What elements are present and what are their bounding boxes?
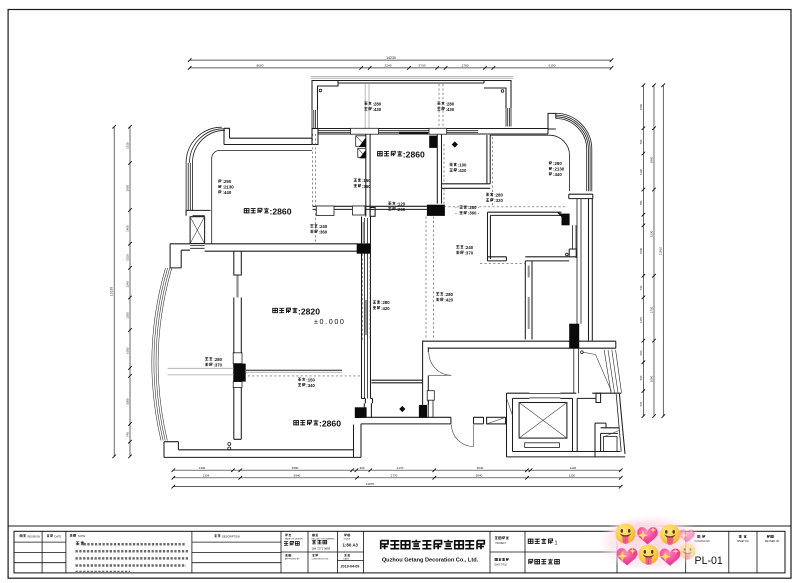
svg-text::280: :280 <box>446 101 455 106</box>
svg-text:740: 740 <box>125 432 129 437</box>
svg-text:APPROVED BY: APPROVED BY <box>285 558 301 561</box>
svg-text::360: :360 <box>319 230 328 235</box>
svg-text:3040: 3040 <box>477 466 484 470</box>
svg-text:3230: 3230 <box>649 230 653 237</box>
svg-text:±0.000: ±0.000 <box>314 317 346 326</box>
svg-text:CONSTRUCTION: CONSTRUCTION <box>312 559 329 561</box>
svg-text::280: :280 <box>373 101 382 106</box>
svg-text:PL-01: PL-01 <box>695 555 723 567</box>
svg-text:600: 600 <box>639 350 643 355</box>
svg-text:DESCRIPTION: DESCRIPTION <box>222 534 240 538</box>
svg-text:5940: 5940 <box>294 474 301 478</box>
svg-text::430: :430 <box>446 107 455 112</box>
svg-text:REVISED NO.: REVISED NO. <box>765 541 780 543</box>
svg-text:1120: 1120 <box>569 474 576 478</box>
svg-text::370: :370 <box>465 251 474 256</box>
svg-text:1350: 1350 <box>125 312 129 319</box>
svg-text::320: :320 <box>494 198 503 203</box>
svg-text::280: :280 <box>444 292 453 297</box>
svg-text:1510: 1510 <box>125 142 129 149</box>
svg-text:1130: 1130 <box>639 169 643 175</box>
svg-text:SCALE: SCALE <box>344 538 351 541</box>
svg-text::420: :420 <box>444 298 453 303</box>
svg-text:DWG.TITLE: DWG.TITLE <box>495 565 508 567</box>
svg-text:1240: 1240 <box>125 281 129 288</box>
svg-text:520: 520 <box>639 401 643 406</box>
svg-text::420: :420 <box>458 168 467 173</box>
svg-text:560: 560 <box>639 375 643 380</box>
svg-text:-: - <box>455 205 457 210</box>
svg-text::360 -: :360 - <box>468 211 480 216</box>
svg-text:1334: 1334 <box>203 474 210 478</box>
svg-text::290: :290 <box>553 161 562 166</box>
svg-text:Quzhou Getang Decoration Co.,: Quzhou Getang Decoration Co., Ltd. <box>382 558 479 564</box>
svg-text::150: :150 <box>306 377 315 382</box>
svg-text::440: :440 <box>553 172 562 177</box>
svg-text::280: :280 <box>213 357 222 362</box>
svg-text::240: :240 <box>465 245 474 250</box>
svg-text::280: :280 <box>494 193 503 198</box>
svg-text::360: :360 <box>362 184 371 189</box>
svg-text::260: :260 <box>397 207 406 212</box>
svg-text:DATE: DATE <box>55 534 62 538</box>
svg-text:1:80 A3: 1:80 A3 <box>343 543 359 548</box>
svg-text:DATE: DATE <box>344 558 350 561</box>
svg-text::280: :280 <box>381 300 390 305</box>
svg-text:8600: 8600 <box>257 64 264 68</box>
svg-text::2860: :2860 <box>403 150 425 160</box>
svg-text:SHEET NO.: SHEET NO. <box>737 541 750 543</box>
svg-text::370: :370 <box>213 363 222 368</box>
svg-text:NAME OF DESIGN: NAME OF DESIGN <box>285 538 304 541</box>
svg-text:2000: 2000 <box>125 398 129 405</box>
svg-text:1600: 1600 <box>125 347 129 354</box>
svg-text:2730: 2730 <box>419 64 426 68</box>
svg-text:2019-04-09: 2019-04-09 <box>341 565 360 569</box>
svg-text::150: :150 <box>362 178 371 183</box>
svg-text::240: :240 <box>319 224 328 229</box>
svg-text:2860: 2860 <box>649 156 653 163</box>
svg-text:13130: 13130 <box>110 287 114 296</box>
svg-text::2130: :2130 <box>553 167 565 172</box>
svg-text:730: 730 <box>639 285 643 290</box>
svg-text:1560: 1560 <box>639 103 643 110</box>
svg-text:2170: 2170 <box>397 466 404 470</box>
svg-text:6190: 6190 <box>549 64 556 68</box>
svg-text::2130: :2130 <box>223 185 235 190</box>
svg-text:760: 760 <box>639 139 643 144</box>
svg-text:1010: 1010 <box>125 254 129 261</box>
svg-text:11810: 11810 <box>659 247 663 256</box>
svg-text:NOTE: NOTE <box>78 534 85 538</box>
svg-text:1: 1 <box>555 541 558 547</box>
svg-text:2770: 2770 <box>391 474 398 478</box>
svg-text:780: 780 <box>639 200 643 205</box>
svg-text:1950: 1950 <box>125 185 129 192</box>
svg-text:1530: 1530 <box>639 247 643 254</box>
svg-text::280 -: :280 - <box>468 205 480 210</box>
svg-text::100: :100 <box>458 163 467 168</box>
svg-text:11870: 11870 <box>366 482 375 486</box>
svg-text::440: :440 <box>223 190 232 195</box>
svg-text:1330: 1330 <box>199 466 206 470</box>
svg-text::2820: :2820 <box>298 306 320 316</box>
svg-text:4590: 4590 <box>292 466 299 470</box>
svg-text::420: :420 <box>381 306 390 311</box>
svg-text::120: :120 <box>397 201 406 206</box>
svg-text::2860: :2860 <box>270 207 292 217</box>
svg-text::340: :340 <box>306 383 315 388</box>
svg-text::430: :430 <box>373 107 382 112</box>
svg-text:300: 300 <box>359 466 364 470</box>
svg-text::2860: :2860 <box>319 419 341 429</box>
svg-text:3040: 3040 <box>476 474 483 478</box>
svg-text:1120: 1120 <box>570 466 577 470</box>
svg-text:1080: 1080 <box>649 375 653 382</box>
svg-text:REVISION: REVISION <box>28 534 41 538</box>
svg-text:1730: 1730 <box>649 306 653 313</box>
svg-text:186 7271 9899: 186 7271 9899 <box>312 547 331 551</box>
svg-text:1400: 1400 <box>125 225 129 232</box>
svg-text:2240: 2240 <box>385 64 392 68</box>
svg-text:1780: 1780 <box>462 64 469 68</box>
svg-text:PROJECT: PROJECT <box>496 543 507 545</box>
svg-text::290: :290 <box>223 179 232 184</box>
svg-text:-: - <box>455 211 457 216</box>
svg-text:14230: 14230 <box>386 56 396 60</box>
svg-text:1170: 1170 <box>639 317 643 323</box>
